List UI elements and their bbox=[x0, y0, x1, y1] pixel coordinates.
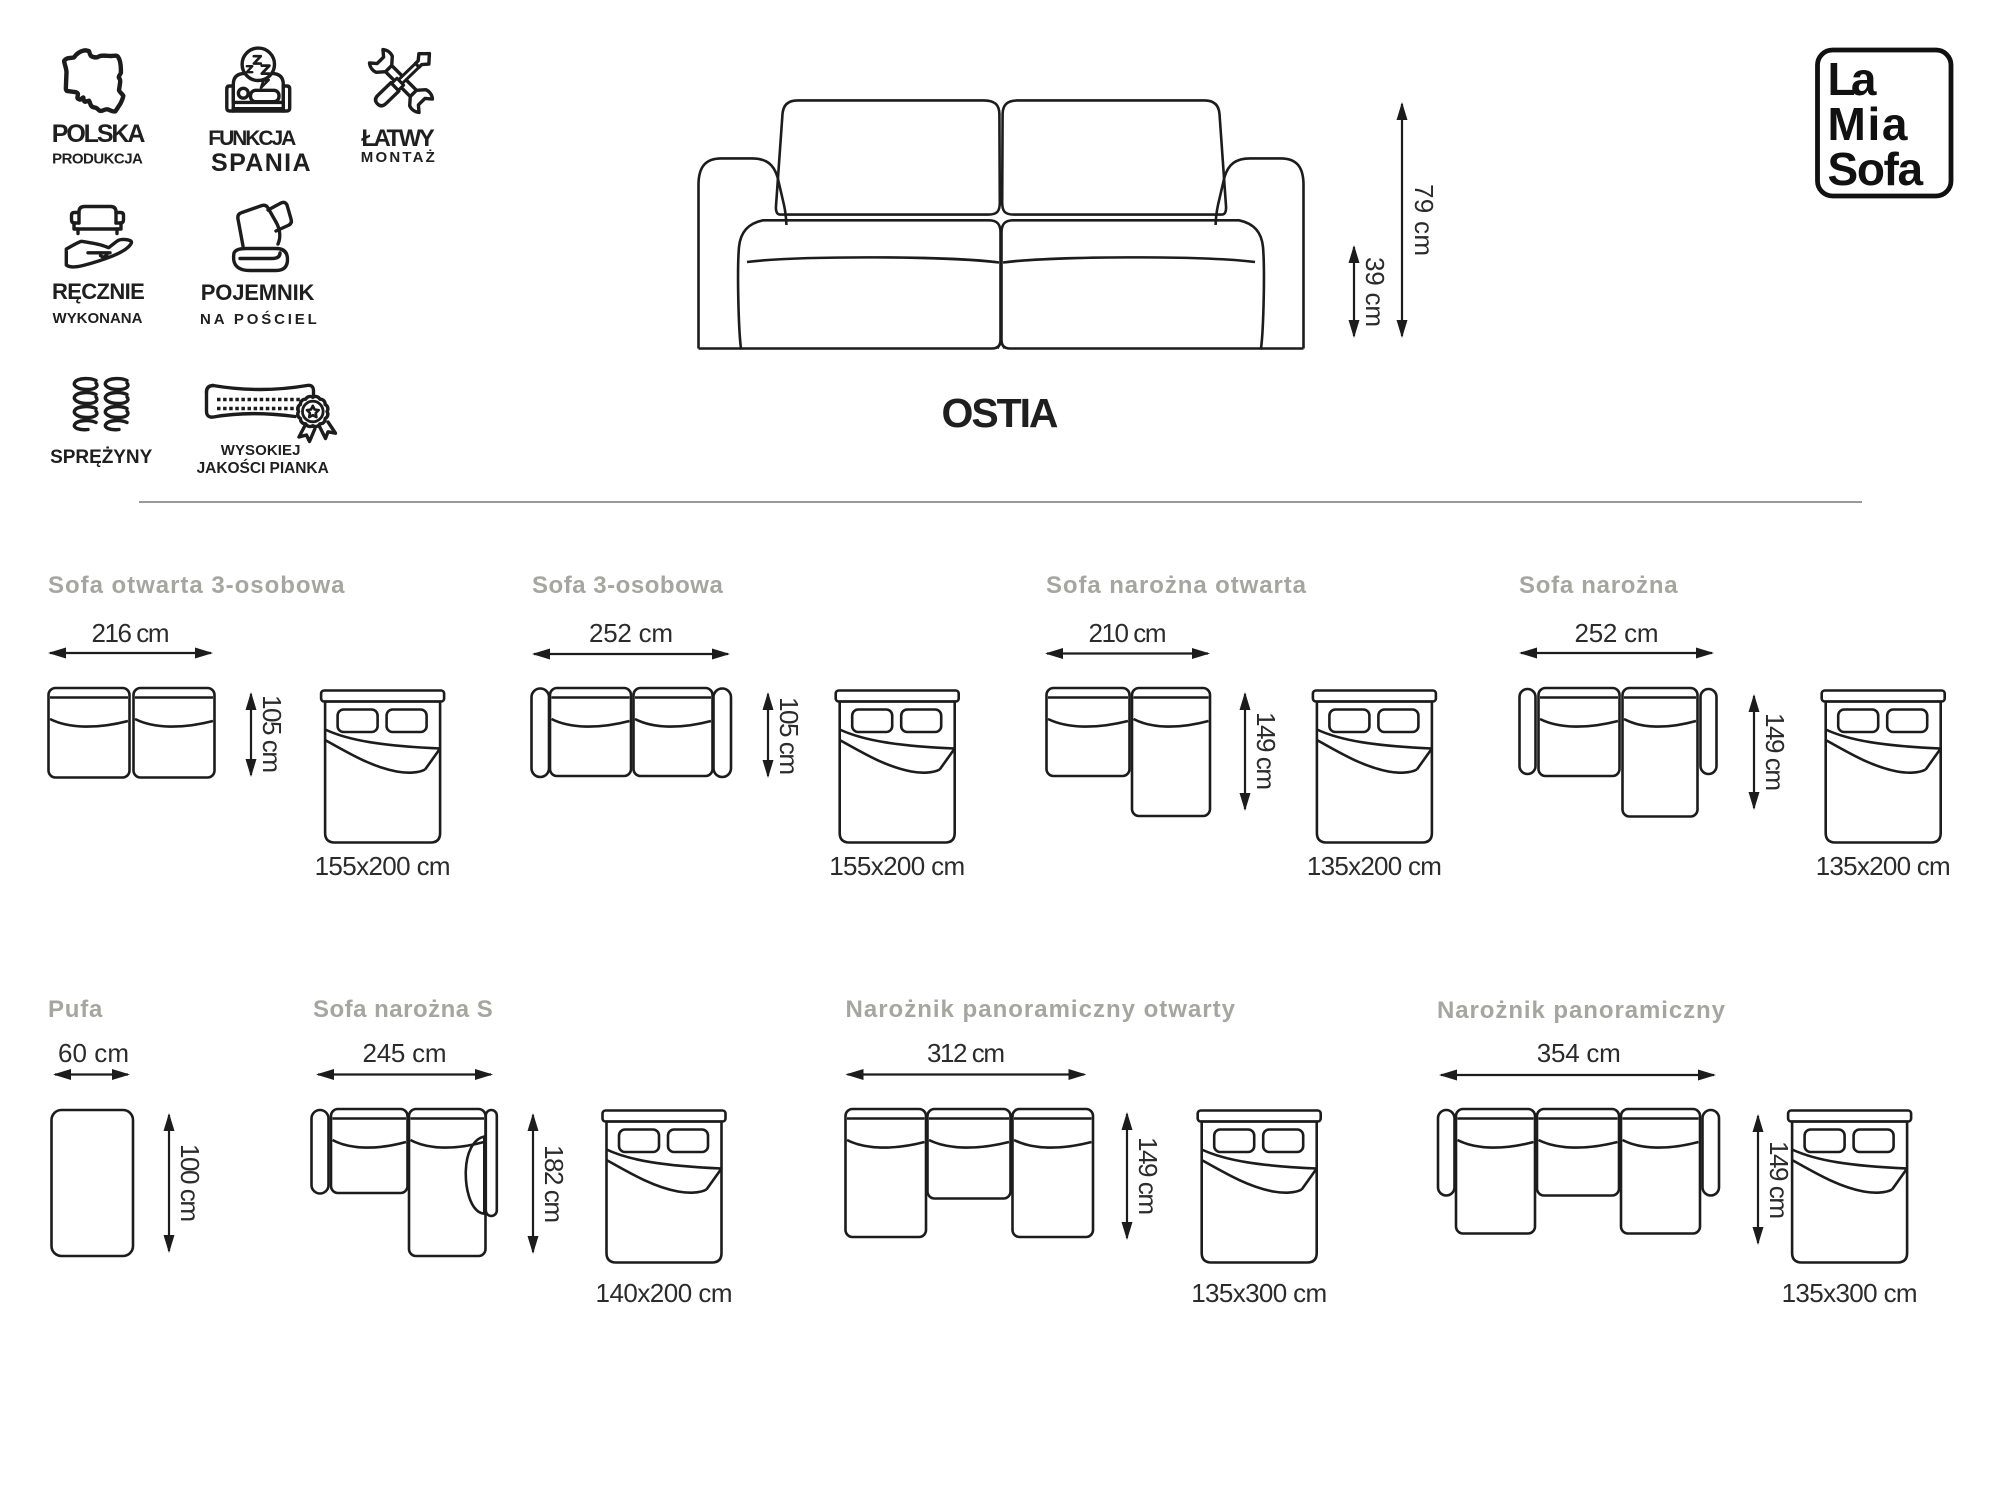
svg-text:POLSKA: POLSKA bbox=[52, 120, 146, 148]
svg-text:135x200 cm: 135x200 cm bbox=[1307, 851, 1442, 881]
svg-text:Sofa otwarta 3-osobowa: Sofa otwarta 3-osobowa bbox=[48, 572, 345, 599]
svg-text:79 cm: 79 cm bbox=[1409, 184, 1439, 256]
svg-text:Narożnik panoramiczny: Narożnik panoramiczny bbox=[1437, 997, 1726, 1024]
svg-text:135x300 cm: 135x300 cm bbox=[1191, 1278, 1327, 1308]
svg-text:140x200 cm: 140x200 cm bbox=[596, 1278, 733, 1308]
svg-text:Sofa: Sofa bbox=[1828, 143, 1924, 195]
svg-text:Sofa narożna otwarta: Sofa narożna otwarta bbox=[1046, 572, 1307, 599]
svg-text:WYSOKIEJ: WYSOKIEJ bbox=[221, 442, 301, 459]
svg-text:312 cm: 312 cm bbox=[927, 1038, 1005, 1068]
svg-text:SPRĘŻYNY: SPRĘŻYNY bbox=[50, 447, 153, 468]
svg-text:252 cm: 252 cm bbox=[589, 618, 673, 648]
svg-text:149 cm: 149 cm bbox=[1764, 1141, 1794, 1219]
svg-text:252 cm: 252 cm bbox=[1575, 618, 1659, 648]
svg-text:354 cm: 354 cm bbox=[1537, 1038, 1621, 1068]
svg-text:216 cm: 216 cm bbox=[92, 618, 170, 648]
svg-text:Sofa 3-osobowa: Sofa 3-osobowa bbox=[532, 572, 723, 599]
svg-text:SPANIA: SPANIA bbox=[211, 149, 311, 177]
svg-text:135x200 cm: 135x200 cm bbox=[1816, 851, 1951, 881]
svg-text:155x200 cm: 155x200 cm bbox=[829, 851, 965, 881]
svg-text:Sofa narożna S: Sofa narożna S bbox=[313, 996, 493, 1023]
svg-text:PRODUKCJA: PRODUKCJA bbox=[52, 151, 143, 168]
svg-text:105 cm: 105 cm bbox=[774, 697, 804, 775]
svg-text:RĘCZNIE: RĘCZNIE bbox=[52, 279, 145, 304]
svg-text:Narożnik panoramiczny otwarty: Narożnik panoramiczny otwarty bbox=[846, 996, 1236, 1023]
svg-text:149 cm: 149 cm bbox=[1133, 1137, 1163, 1215]
svg-text:182 cm: 182 cm bbox=[539, 1145, 569, 1223]
svg-text:210 cm: 210 cm bbox=[1089, 618, 1167, 648]
svg-text:OSTIA: OSTIA bbox=[942, 390, 1059, 436]
svg-text:WYKONANA: WYKONANA bbox=[53, 310, 143, 327]
svg-text:ŁATWY: ŁATWY bbox=[361, 125, 434, 152]
svg-text:149 cm: 149 cm bbox=[1760, 713, 1790, 791]
svg-text:FUNKCJA: FUNKCJA bbox=[208, 127, 296, 150]
svg-text:POJEMNIK: POJEMNIK bbox=[201, 280, 315, 305]
svg-text:Sofa narożna: Sofa narożna bbox=[1519, 572, 1678, 599]
svg-text:60 cm: 60 cm bbox=[58, 1038, 129, 1068]
svg-text:149 cm: 149 cm bbox=[1251, 712, 1281, 790]
svg-text:Pufa: Pufa bbox=[48, 996, 103, 1023]
svg-text:245 cm: 245 cm bbox=[363, 1038, 447, 1068]
svg-text:JAKOŚCI PIANKA: JAKOŚCI PIANKA bbox=[197, 459, 329, 477]
svg-text:155x200 cm: 155x200 cm bbox=[315, 851, 451, 881]
svg-text:100 cm: 100 cm bbox=[175, 1144, 205, 1222]
svg-text:105 cm: 105 cm bbox=[257, 695, 287, 773]
svg-text:39 cm: 39 cm bbox=[1360, 257, 1390, 327]
svg-text:135x300 cm: 135x300 cm bbox=[1782, 1278, 1918, 1308]
